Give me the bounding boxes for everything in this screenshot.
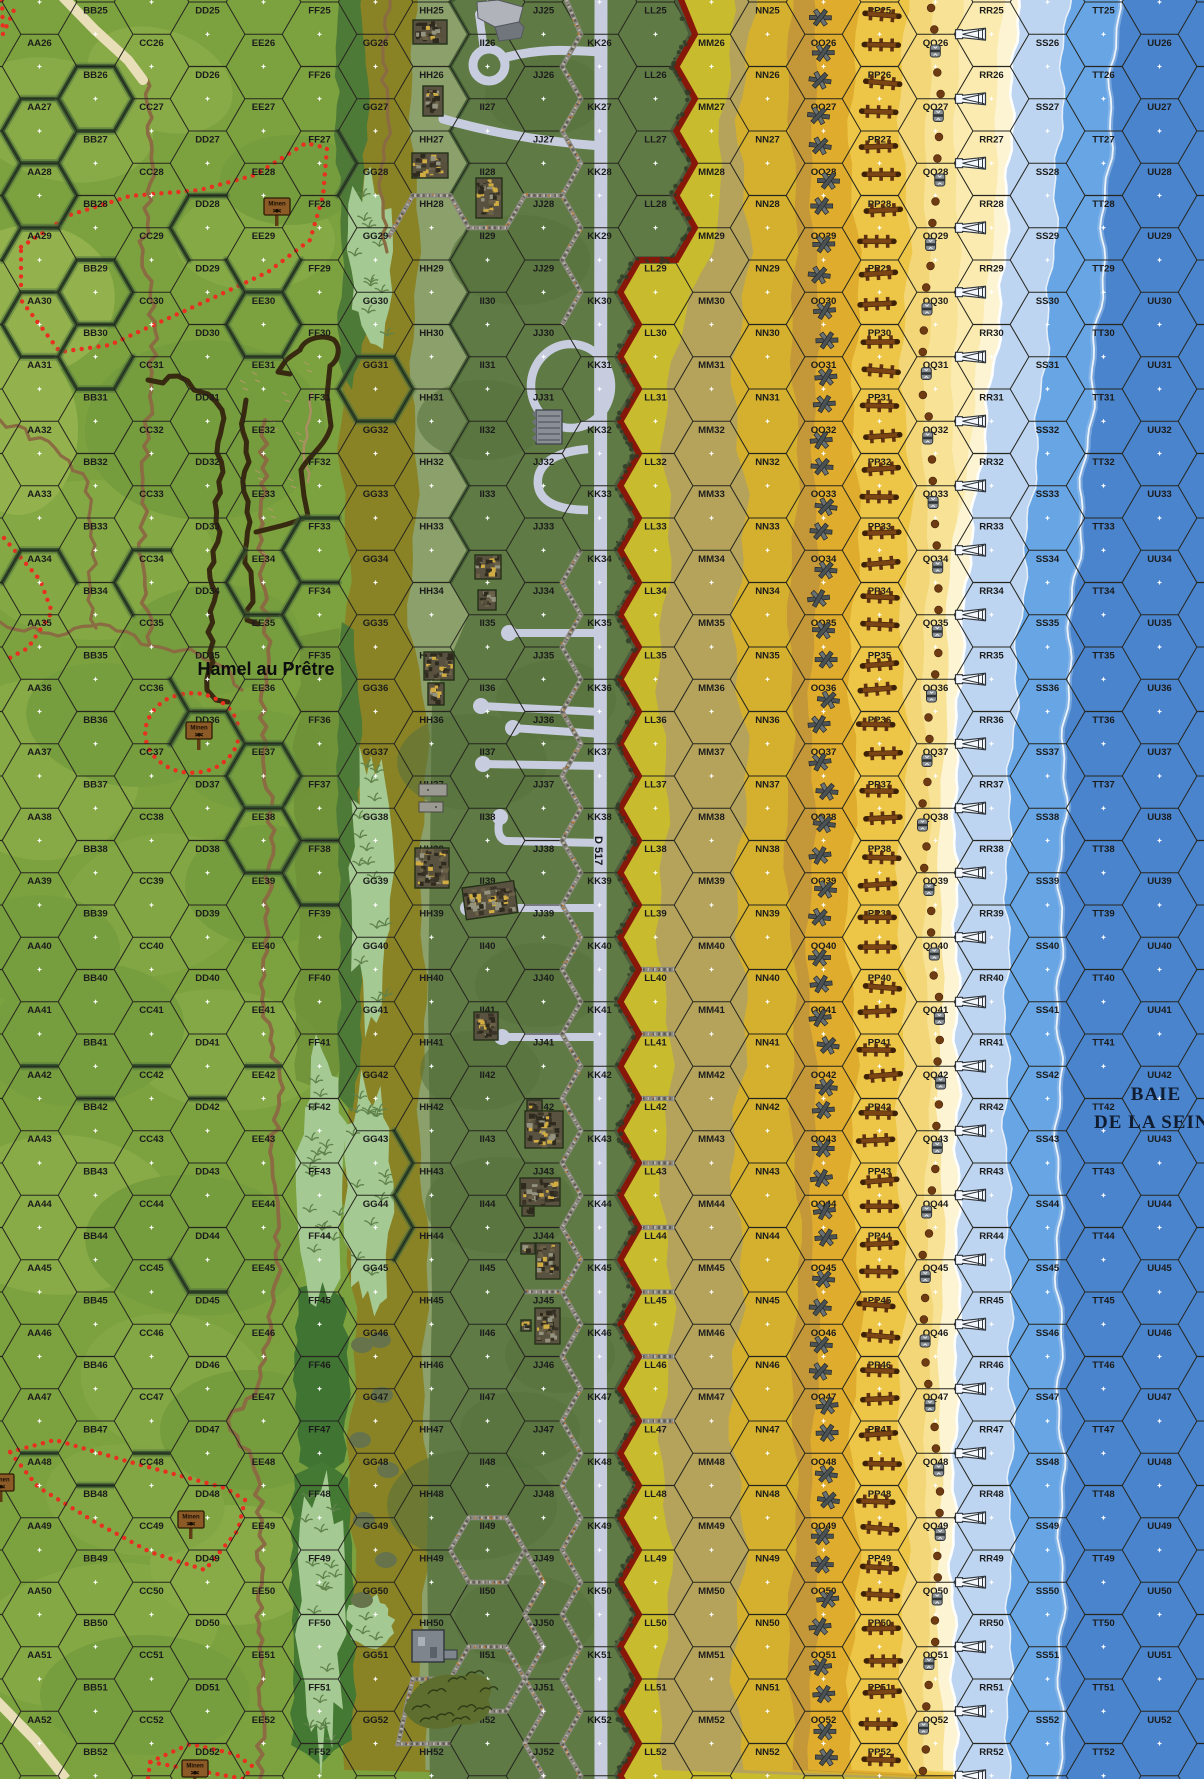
- svg-text:AA41: AA41: [27, 1005, 52, 1016]
- svg-text:BB42: BB42: [83, 1102, 108, 1113]
- svg-text:SS42: SS42: [1036, 1070, 1059, 1081]
- svg-text:TT35: TT35: [1092, 651, 1115, 662]
- svg-text:HH52: HH52: [419, 1747, 444, 1758]
- svg-text:CC49: CC49: [139, 1521, 164, 1532]
- svg-text:UU28: UU28: [1147, 167, 1172, 178]
- svg-text:HH28: HH28: [419, 199, 444, 210]
- svg-text:UU46: UU46: [1147, 1328, 1172, 1339]
- svg-text:MM51: MM51: [698, 1650, 725, 1661]
- svg-text:NN39: NN39: [755, 909, 780, 920]
- svg-text:EE41: EE41: [252, 1005, 276, 1016]
- svg-text:LL37: LL37: [644, 780, 666, 791]
- svg-text:EE43: EE43: [252, 1134, 275, 1145]
- svg-text:HH42: HH42: [419, 1102, 444, 1113]
- svg-text:SS45: SS45: [1036, 1263, 1060, 1274]
- svg-text:RR38: RR38: [979, 844, 1004, 855]
- svg-text:SS29: SS29: [1036, 231, 1059, 242]
- svg-text:FF30: FF30: [308, 328, 330, 339]
- svg-text:GG37: GG37: [363, 747, 389, 758]
- svg-text:FF31: FF31: [308, 393, 331, 404]
- svg-text:NN43: NN43: [755, 1167, 780, 1178]
- svg-text:II50: II50: [479, 1586, 495, 1597]
- svg-text:DD42: DD42: [195, 1102, 220, 1113]
- svg-text:EE29: EE29: [252, 231, 275, 242]
- svg-text:II43: II43: [479, 1134, 495, 1145]
- svg-text:KK32: KK32: [587, 425, 612, 436]
- svg-text:II51: II51: [479, 1650, 496, 1661]
- svg-text:LL40: LL40: [644, 973, 666, 984]
- svg-text:DD32: DD32: [195, 457, 220, 468]
- svg-text:NN41: NN41: [755, 1038, 780, 1049]
- svg-text:AA51: AA51: [27, 1650, 52, 1661]
- svg-text:FF34: FF34: [308, 586, 331, 597]
- svg-text:RR41: RR41: [979, 1038, 1004, 1049]
- svg-text:AA38: AA38: [27, 812, 52, 823]
- svg-text:RR46: RR46: [979, 1360, 1004, 1371]
- svg-text:RR37: RR37: [979, 780, 1004, 791]
- svg-text:II38: II38: [479, 812, 496, 823]
- svg-text:JJ38: JJ38: [533, 844, 555, 855]
- svg-text:NN25: NN25: [755, 6, 780, 17]
- svg-text:CC30: CC30: [139, 296, 164, 307]
- svg-text:LL30: LL30: [644, 328, 666, 339]
- svg-text:RR44: RR44: [979, 1231, 1004, 1242]
- svg-text:TT50: TT50: [1092, 1618, 1114, 1629]
- svg-text:MM40: MM40: [698, 941, 725, 952]
- svg-text:II35: II35: [479, 618, 496, 629]
- svg-text:EE31: EE31: [252, 360, 276, 371]
- svg-text:NN31: NN31: [755, 393, 780, 404]
- svg-text:EE48: EE48: [252, 1457, 276, 1468]
- svg-text:EE46: EE46: [252, 1328, 275, 1339]
- svg-text:JJ46: JJ46: [533, 1360, 554, 1371]
- svg-text:EE50: EE50: [252, 1586, 275, 1597]
- svg-text:FF41: FF41: [308, 1038, 331, 1049]
- svg-text:TT36: TT36: [1092, 715, 1114, 726]
- svg-text:DD29: DD29: [195, 264, 220, 275]
- svg-text:GG30: GG30: [363, 296, 389, 307]
- svg-text:HH34: HH34: [419, 586, 444, 597]
- svg-text:RR43: RR43: [979, 1167, 1004, 1178]
- svg-text:EE32: EE32: [252, 425, 275, 436]
- svg-text:OO46: OO46: [811, 1328, 837, 1339]
- svg-text:DD28: DD28: [195, 199, 220, 210]
- svg-text:RR50: RR50: [979, 1618, 1004, 1629]
- svg-text:II40: II40: [479, 941, 495, 952]
- svg-text:BAIE: BAIE: [1131, 1084, 1181, 1105]
- svg-text:AA29: AA29: [27, 231, 52, 242]
- svg-text:SS41: SS41: [1036, 1005, 1060, 1016]
- svg-text:GG52: GG52: [363, 1715, 389, 1726]
- svg-text:CC44: CC44: [139, 1199, 164, 1210]
- svg-text:FF46: FF46: [308, 1360, 330, 1371]
- svg-text:JJ49: JJ49: [533, 1554, 554, 1565]
- svg-text:DD48: DD48: [195, 1489, 220, 1500]
- svg-text:TT27: TT27: [1092, 135, 1114, 146]
- svg-text:FF52: FF52: [308, 1747, 330, 1758]
- svg-text:MM49: MM49: [698, 1521, 725, 1532]
- svg-text:II32: II32: [479, 425, 495, 436]
- svg-text:BB43: BB43: [83, 1167, 108, 1178]
- svg-text:II26: II26: [479, 38, 495, 49]
- svg-text:KK38: KK38: [587, 812, 612, 823]
- svg-text:MM45: MM45: [698, 1263, 725, 1274]
- svg-text:SS35: SS35: [1036, 618, 1060, 629]
- svg-text:TT40: TT40: [1092, 973, 1114, 984]
- svg-text:FF38: FF38: [308, 844, 331, 855]
- svg-text:NN26: NN26: [755, 70, 780, 81]
- svg-text:TT51: TT51: [1092, 1683, 1115, 1694]
- svg-text:UU40: UU40: [1147, 941, 1172, 952]
- svg-text:TT46: TT46: [1092, 1360, 1114, 1371]
- svg-text:AA46: AA46: [27, 1328, 52, 1339]
- svg-text:JJ32: JJ32: [533, 457, 554, 468]
- svg-text:TT43: TT43: [1092, 1167, 1114, 1178]
- svg-text:NN52: NN52: [755, 1747, 780, 1758]
- svg-text:LL45: LL45: [644, 1296, 667, 1307]
- svg-text:FF50: FF50: [308, 1618, 330, 1629]
- svg-text:MM32: MM32: [698, 425, 725, 436]
- svg-text:AA26: AA26: [27, 38, 52, 49]
- svg-text:KK34: KK34: [587, 554, 612, 565]
- svg-text:HH49: HH49: [419, 1554, 444, 1565]
- svg-text:CC47: CC47: [139, 1392, 164, 1403]
- svg-text:AA35: AA35: [27, 618, 52, 629]
- svg-text:JJ31: JJ31: [533, 393, 555, 404]
- svg-text:GG29: GG29: [363, 231, 389, 242]
- svg-text:EE28: EE28: [252, 167, 276, 178]
- svg-text:JJ43: JJ43: [533, 1167, 554, 1178]
- svg-text:EE34: EE34: [252, 554, 276, 565]
- svg-text:NN28: NN28: [755, 199, 780, 210]
- svg-text:UU52: UU52: [1147, 1715, 1172, 1726]
- svg-text:CC27: CC27: [139, 102, 164, 113]
- svg-text:HH26: HH26: [419, 70, 444, 81]
- svg-text:RR29: RR29: [979, 264, 1004, 275]
- svg-text:BB44: BB44: [83, 1231, 108, 1242]
- svg-text:JJ33: JJ33: [533, 522, 554, 533]
- svg-text:HH27: HH27: [419, 135, 444, 146]
- svg-text:CC39: CC39: [139, 876, 164, 887]
- svg-text:JJ25: JJ25: [533, 6, 555, 17]
- svg-text:GG28: GG28: [363, 167, 389, 178]
- svg-text:NN44: NN44: [755, 1231, 780, 1242]
- svg-text:MM43: MM43: [698, 1134, 725, 1145]
- svg-text:II49: II49: [479, 1521, 495, 1532]
- svg-text:BB28: BB28: [83, 199, 108, 210]
- svg-text:CC48: CC48: [139, 1457, 164, 1468]
- svg-text:SS28: SS28: [1036, 167, 1060, 178]
- svg-text:TT49: TT49: [1092, 1554, 1114, 1565]
- svg-text:BB25: BB25: [83, 6, 108, 17]
- svg-text:UU49: UU49: [1147, 1521, 1172, 1532]
- svg-text:EE30: EE30: [252, 296, 275, 307]
- svg-text:KK31: KK31: [587, 360, 612, 371]
- svg-text:UU37: UU37: [1147, 747, 1172, 758]
- svg-text:CC51: CC51: [139, 1650, 164, 1661]
- svg-text:SS39: SS39: [1036, 876, 1059, 887]
- svg-text:LL33: LL33: [644, 522, 666, 533]
- svg-text:LL50: LL50: [644, 1618, 666, 1629]
- svg-text:JJ28: JJ28: [533, 199, 555, 210]
- svg-text:KK26: KK26: [587, 38, 612, 49]
- svg-text:HH29: HH29: [419, 264, 444, 275]
- svg-text:AA27: AA27: [27, 102, 52, 113]
- svg-text:II36: II36: [479, 683, 495, 694]
- svg-text:NN37: NN37: [755, 780, 780, 791]
- svg-text:GG48: GG48: [363, 1457, 389, 1468]
- svg-text:II37: II37: [479, 747, 495, 758]
- svg-text:MM48: MM48: [698, 1457, 725, 1468]
- svg-text:EE47: EE47: [252, 1392, 275, 1403]
- svg-text:UU43: UU43: [1147, 1134, 1172, 1145]
- svg-text:TT37: TT37: [1092, 780, 1114, 791]
- svg-text:UU45: UU45: [1147, 1263, 1172, 1274]
- svg-text:JJ51: JJ51: [533, 1683, 555, 1694]
- svg-text:MM50: MM50: [698, 1586, 725, 1597]
- svg-text:UU48: UU48: [1147, 1457, 1172, 1468]
- svg-text:RR40: RR40: [979, 973, 1004, 984]
- svg-text:UU42: UU42: [1147, 1070, 1172, 1081]
- svg-text:NN49: NN49: [755, 1554, 780, 1565]
- svg-text:FF26: FF26: [308, 70, 330, 81]
- svg-text:FF27: FF27: [308, 135, 330, 146]
- svg-text:AA52: AA52: [27, 1715, 52, 1726]
- svg-text:MM34: MM34: [698, 554, 725, 565]
- svg-text:AA50: AA50: [27, 1586, 52, 1597]
- svg-text:BB40: BB40: [83, 973, 108, 984]
- svg-text:CC50: CC50: [139, 1586, 164, 1597]
- svg-text:SS32: SS32: [1036, 425, 1059, 436]
- svg-text:JJ34: JJ34: [533, 586, 555, 597]
- svg-text:LL38: LL38: [644, 844, 667, 855]
- svg-text:EE26: EE26: [252, 38, 275, 49]
- svg-text:BB50: BB50: [83, 1618, 108, 1629]
- svg-text:UU32: UU32: [1147, 425, 1172, 436]
- svg-text:EE40: EE40: [252, 941, 275, 952]
- svg-text:RR28: RR28: [979, 199, 1004, 210]
- svg-text:LL39: LL39: [644, 909, 666, 920]
- svg-text:BB39: BB39: [83, 909, 108, 920]
- svg-text:JJ44: JJ44: [533, 1231, 555, 1242]
- svg-text:GG46: GG46: [363, 1328, 389, 1339]
- svg-text:GG39: GG39: [363, 876, 389, 887]
- svg-text:FF33: FF33: [308, 522, 330, 533]
- svg-text:KK39: KK39: [587, 876, 612, 887]
- svg-text:NN40: NN40: [755, 973, 780, 984]
- svg-text:MM52: MM52: [698, 1715, 725, 1726]
- svg-text:AA48: AA48: [27, 1457, 52, 1468]
- svg-text:UU51: UU51: [1147, 1650, 1172, 1661]
- svg-text:GG33: GG33: [363, 489, 389, 500]
- svg-text:SS52: SS52: [1036, 1715, 1059, 1726]
- svg-text:CC28: CC28: [139, 167, 164, 178]
- svg-text:GG27: GG27: [363, 102, 389, 113]
- svg-text:II28: II28: [479, 167, 496, 178]
- svg-text:FF44: FF44: [308, 1231, 331, 1242]
- svg-text:BB45: BB45: [83, 1296, 108, 1307]
- svg-text:TT52: TT52: [1092, 1747, 1114, 1758]
- svg-text:II46: II46: [479, 1328, 495, 1339]
- svg-text:LL44: LL44: [644, 1231, 667, 1242]
- svg-text:CC38: CC38: [139, 812, 164, 823]
- svg-text:NN48: NN48: [755, 1489, 780, 1500]
- svg-text:JJ52: JJ52: [533, 1747, 554, 1758]
- svg-text:SS40: SS40: [1036, 941, 1059, 952]
- svg-text:II27: II27: [479, 102, 495, 113]
- svg-text:KK52: KK52: [587, 1715, 612, 1726]
- svg-text:UU39: UU39: [1147, 876, 1172, 887]
- svg-text:BB47: BB47: [83, 1425, 108, 1436]
- svg-text:EE42: EE42: [252, 1070, 275, 1081]
- svg-text:UU47: UU47: [1147, 1392, 1172, 1403]
- svg-text:LL43: LL43: [644, 1167, 666, 1178]
- svg-text:SS47: SS47: [1036, 1392, 1059, 1403]
- svg-text:UU50: UU50: [1147, 1586, 1172, 1597]
- svg-text:FF32: FF32: [308, 457, 330, 468]
- svg-text:FF39: FF39: [308, 909, 330, 920]
- svg-text:RR45: RR45: [979, 1296, 1004, 1307]
- svg-text:GG49: GG49: [363, 1521, 389, 1532]
- svg-text:KK37: KK37: [587, 747, 612, 758]
- svg-text:SS37: SS37: [1036, 747, 1059, 758]
- svg-text:MM33: MM33: [698, 489, 725, 500]
- svg-text:DD49: DD49: [195, 1554, 220, 1565]
- svg-text:GG51: GG51: [363, 1650, 389, 1661]
- svg-text:UU30: UU30: [1147, 296, 1172, 307]
- svg-text:TT30: TT30: [1092, 328, 1114, 339]
- svg-text:EE52: EE52: [252, 1715, 275, 1726]
- svg-text:NN33: NN33: [755, 522, 780, 533]
- svg-text:CC26: CC26: [139, 38, 164, 49]
- svg-text:II47: II47: [479, 1392, 495, 1403]
- svg-text:FF47: FF47: [308, 1425, 330, 1436]
- svg-text:OO31: OO31: [811, 360, 837, 371]
- svg-text:DD27: DD27: [195, 135, 220, 146]
- svg-text:LL48: LL48: [644, 1489, 667, 1500]
- svg-text:RR34: RR34: [979, 586, 1004, 597]
- svg-text:DD47: DD47: [195, 1425, 220, 1436]
- svg-text:RR49: RR49: [979, 1554, 1004, 1565]
- svg-text:CC32: CC32: [139, 425, 164, 436]
- svg-text:NN47: NN47: [755, 1425, 780, 1436]
- svg-text:JJ35: JJ35: [533, 651, 555, 662]
- svg-text:BB30: BB30: [83, 328, 108, 339]
- svg-text:DD39: DD39: [195, 909, 220, 920]
- svg-text:RR36: RR36: [979, 715, 1004, 726]
- svg-text:RR25: RR25: [979, 6, 1004, 17]
- svg-text:TT31: TT31: [1092, 393, 1115, 404]
- svg-text:LL26: LL26: [644, 70, 666, 81]
- svg-text:UU36: UU36: [1147, 683, 1172, 694]
- svg-text:HH45: HH45: [419, 1296, 444, 1307]
- svg-text:OO43: OO43: [811, 1134, 837, 1145]
- svg-text:RR31: RR31: [979, 393, 1004, 404]
- svg-text:JJ48: JJ48: [533, 1489, 555, 1500]
- svg-text:JJ27: JJ27: [533, 135, 554, 146]
- svg-text:JJ37: JJ37: [533, 780, 554, 791]
- svg-text:BB33: BB33: [83, 522, 108, 533]
- svg-text:AA32: AA32: [27, 425, 52, 436]
- svg-text:AA49: AA49: [27, 1521, 52, 1532]
- svg-text:TT41: TT41: [1092, 1038, 1115, 1049]
- svg-text:KK33: KK33: [587, 489, 612, 500]
- svg-text:CC42: CC42: [139, 1070, 164, 1081]
- svg-text:HH25: HH25: [419, 6, 444, 17]
- svg-text:SS26: SS26: [1036, 38, 1059, 49]
- svg-text:KK43: KK43: [587, 1134, 612, 1145]
- svg-text:KK41: KK41: [587, 1005, 612, 1016]
- svg-text:GG42: GG42: [363, 1070, 389, 1081]
- svg-text:JJ50: JJ50: [533, 1618, 554, 1629]
- svg-text:TT26: TT26: [1092, 70, 1114, 81]
- svg-text:UU27: UU27: [1147, 102, 1172, 113]
- svg-text:GG36: GG36: [363, 683, 389, 694]
- svg-text:LL42: LL42: [644, 1102, 666, 1113]
- svg-text:SS43: SS43: [1036, 1134, 1059, 1145]
- svg-text:UU31: UU31: [1147, 360, 1172, 371]
- svg-text:JJ26: JJ26: [533, 70, 554, 81]
- svg-text:UU44: UU44: [1147, 1199, 1172, 1210]
- svg-text:RR42: RR42: [979, 1102, 1004, 1113]
- svg-text:EE27: EE27: [252, 102, 275, 113]
- svg-text:TT44: TT44: [1092, 1231, 1115, 1242]
- svg-text:CC37: CC37: [139, 747, 164, 758]
- svg-text:NN45: NN45: [755, 1296, 780, 1307]
- svg-text:SS31: SS31: [1036, 360, 1060, 371]
- svg-text:BB36: BB36: [83, 715, 108, 726]
- svg-text:UU26: UU26: [1147, 38, 1172, 49]
- svg-text:DD41: DD41: [195, 1038, 220, 1049]
- svg-text:LL52: LL52: [644, 1747, 666, 1758]
- svg-text:NN29: NN29: [755, 264, 780, 275]
- svg-text:MM36: MM36: [698, 683, 725, 694]
- svg-text:NN38: NN38: [755, 844, 780, 855]
- svg-text:DD40: DD40: [195, 973, 220, 984]
- svg-text:MM44: MM44: [698, 1199, 725, 1210]
- svg-text:SS36: SS36: [1036, 683, 1059, 694]
- svg-text:RR51: RR51: [979, 1683, 1004, 1694]
- svg-text:DD25: DD25: [195, 6, 220, 17]
- svg-text:NN30: NN30: [755, 328, 780, 339]
- svg-text:TT33: TT33: [1092, 522, 1114, 533]
- svg-text:HH36: HH36: [419, 715, 444, 726]
- svg-text:RR33: RR33: [979, 522, 1004, 533]
- svg-text:TT39: TT39: [1092, 909, 1114, 920]
- svg-text:II45: II45: [479, 1263, 496, 1274]
- svg-text:AA43: AA43: [27, 1134, 52, 1145]
- svg-text:BB26: BB26: [83, 70, 108, 81]
- svg-text:NN35: NN35: [755, 651, 780, 662]
- svg-text:NN36: NN36: [755, 715, 780, 726]
- svg-text:FF28: FF28: [308, 199, 331, 210]
- svg-text:GG43: GG43: [363, 1134, 389, 1145]
- svg-text:BB51: BB51: [83, 1683, 108, 1694]
- svg-text:UU38: UU38: [1147, 812, 1172, 823]
- svg-text:DD51: DD51: [195, 1683, 220, 1694]
- svg-text:KK46: KK46: [587, 1328, 612, 1339]
- svg-text:MM27: MM27: [698, 102, 725, 113]
- svg-text:CC29: CC29: [139, 231, 164, 242]
- svg-text:SS27: SS27: [1036, 102, 1059, 113]
- svg-text:HH48: HH48: [419, 1489, 444, 1500]
- svg-text:NN50: NN50: [755, 1618, 780, 1629]
- svg-text:EE37: EE37: [252, 747, 275, 758]
- svg-text:EE33: EE33: [252, 489, 275, 500]
- svg-text:AA42: AA42: [27, 1070, 52, 1081]
- svg-text:II29: II29: [479, 231, 495, 242]
- svg-text:GG50: GG50: [363, 1586, 389, 1597]
